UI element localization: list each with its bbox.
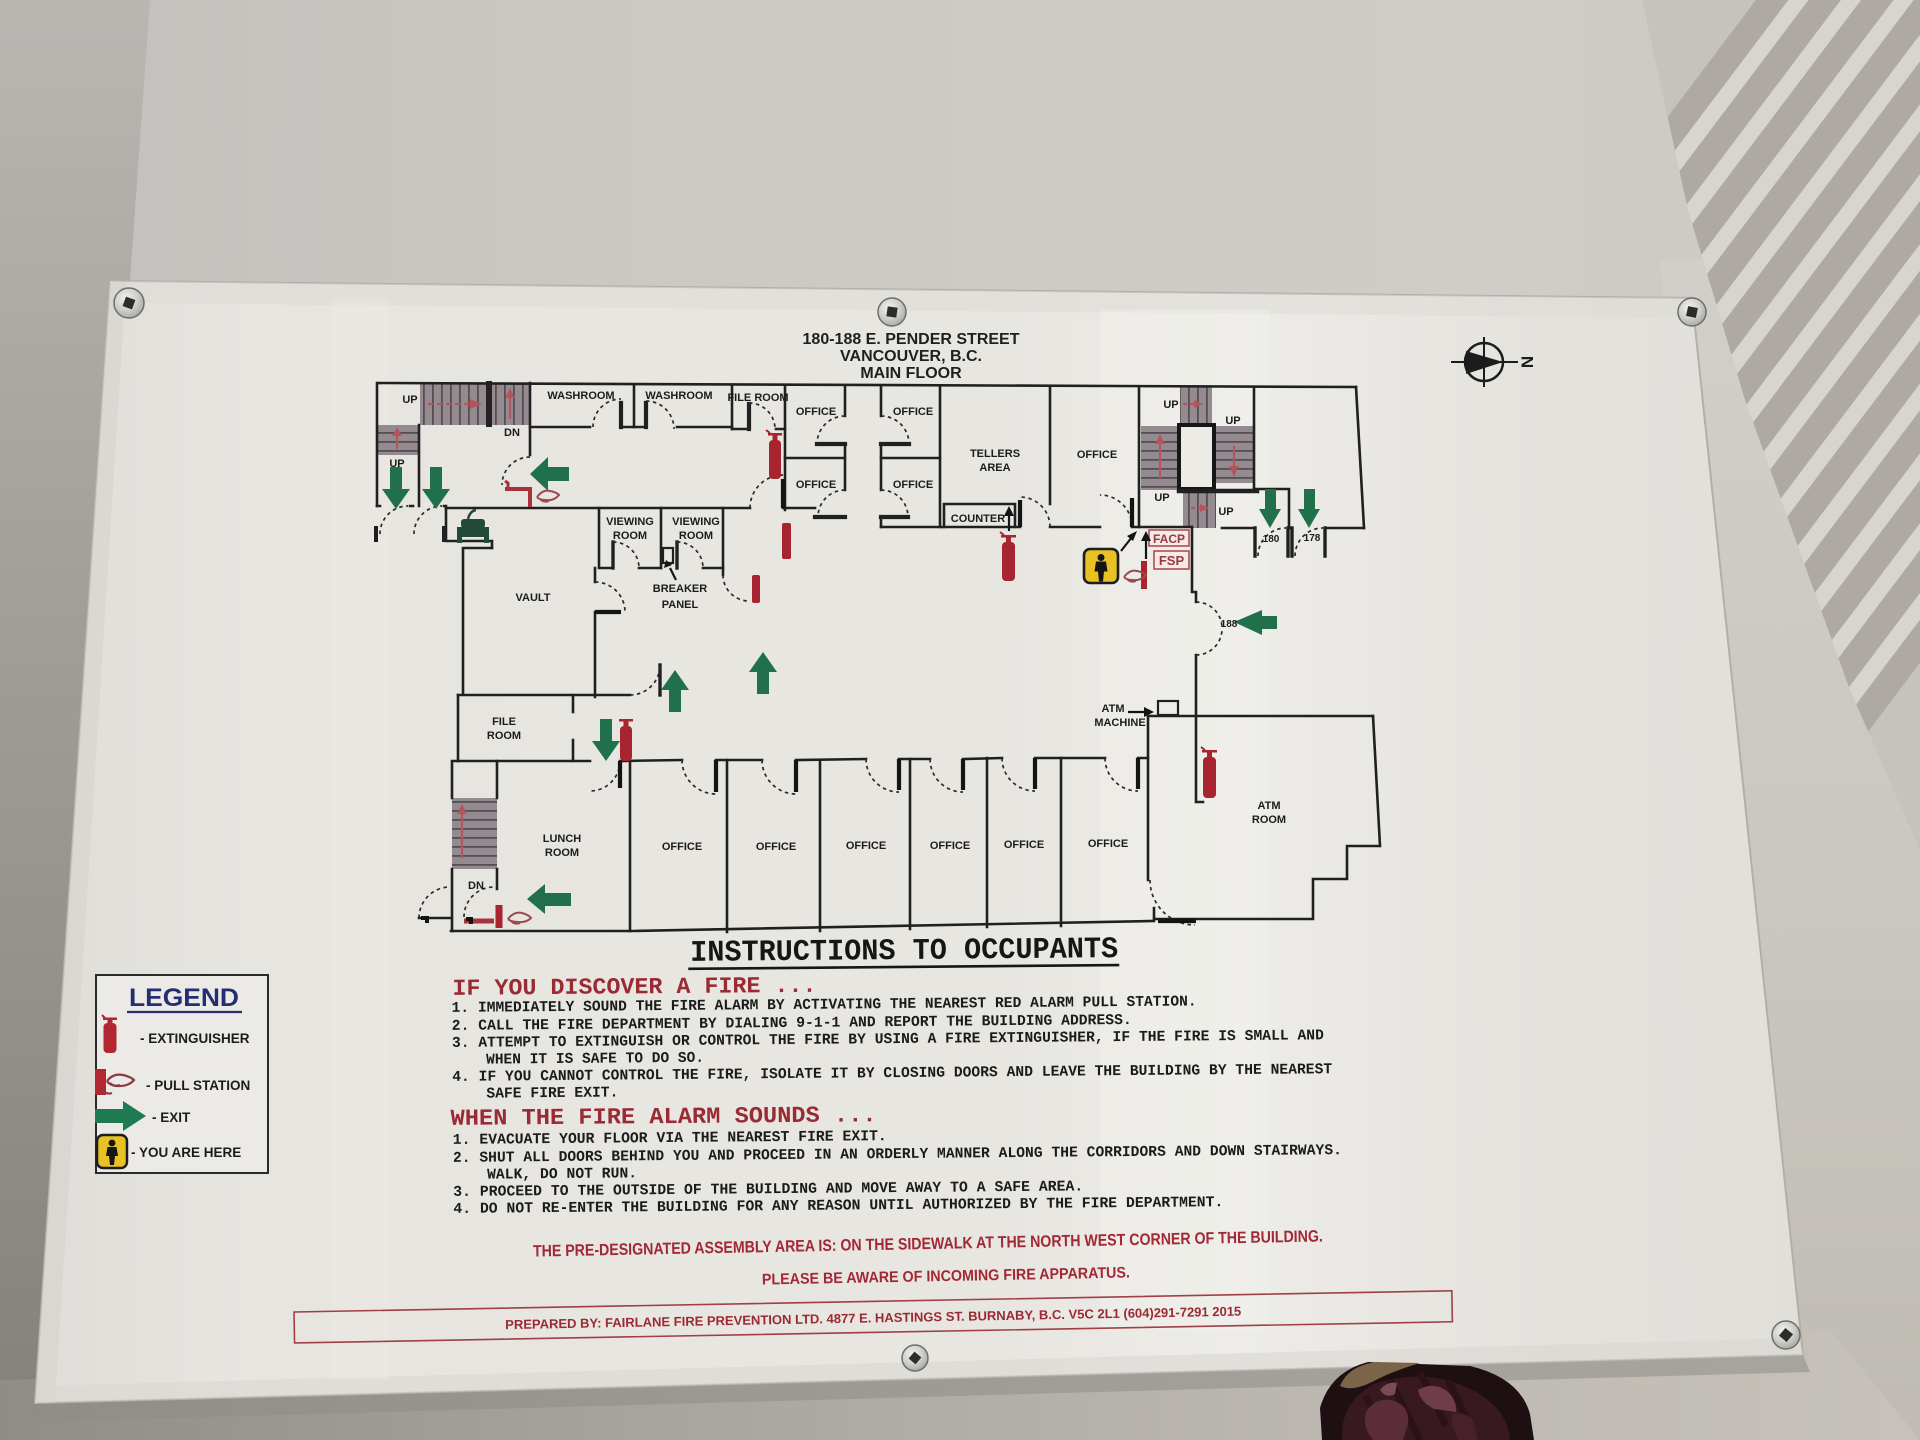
svg-text:FSP: FSP: [1159, 553, 1185, 568]
svg-text:DN: DN: [468, 880, 484, 892]
svg-text:UP: UP: [1218, 506, 1233, 518]
svg-text:- EXTINGUISHER: - EXTINGUISHER: [140, 1031, 250, 1046]
svg-text:OFFICE: OFFICE: [930, 840, 970, 852]
svg-text:- PULL STATION: - PULL STATION: [146, 1078, 250, 1093]
svg-text:OFFICE: OFFICE: [756, 841, 796, 853]
svg-text:FACP: FACP: [1153, 532, 1185, 546]
svg-text:ATM: ATM: [1257, 800, 1280, 812]
svg-text:ATM: ATM: [1101, 703, 1124, 715]
svg-text:COUNTER: COUNTER: [951, 513, 1005, 525]
svg-text:WASHROOM: WASHROOM: [547, 390, 614, 402]
svg-text:ROOM: ROOM: [613, 530, 647, 542]
svg-text:VIEWING: VIEWING: [606, 516, 654, 528]
svg-text:WASHROOM: WASHROOM: [645, 390, 712, 402]
svg-text:OFFICE: OFFICE: [1088, 838, 1128, 850]
svg-text:WHEN IT IS SAFE TO DO SO.: WHEN IT IS SAFE TO DO SO.: [486, 1050, 704, 1069]
svg-text:WHEN THE FIRE ALARM SOUNDS ...: WHEN THE FIRE ALARM SOUNDS ...: [450, 1102, 876, 1132]
svg-text:OFFICE: OFFICE: [1077, 449, 1117, 461]
svg-text:OFFICE: OFFICE: [846, 840, 886, 852]
svg-text:WALK, DO NOT RUN.: WALK, DO NOT RUN.: [487, 1165, 637, 1183]
svg-text:OFFICE: OFFICE: [893, 406, 933, 418]
svg-text:VAULT: VAULT: [515, 592, 550, 604]
svg-text:BREAKER: BREAKER: [653, 583, 707, 595]
svg-text:OFFICE: OFFICE: [893, 479, 933, 491]
svg-text:VIEWING: VIEWING: [672, 516, 720, 528]
svg-text:OFFICE: OFFICE: [796, 479, 836, 491]
svg-text:ROOM: ROOM: [487, 730, 521, 742]
svg-text:SAFE FIRE EXIT.: SAFE FIRE EXIT.: [486, 1084, 618, 1102]
svg-text:LUNCH: LUNCH: [543, 833, 582, 845]
svg-text:DN: DN: [504, 427, 520, 439]
svg-text:LEGEND: LEGEND: [129, 984, 239, 1012]
svg-text:178: 178: [1304, 533, 1321, 544]
svg-text:N: N: [1518, 356, 1537, 368]
svg-text:MAIN FLOOR: MAIN FLOOR: [860, 365, 962, 382]
svg-text:MACHINE: MACHINE: [1094, 717, 1145, 729]
svg-text:ROOM: ROOM: [545, 847, 579, 859]
svg-text:OFFICE: OFFICE: [796, 406, 836, 418]
svg-text:180: 180: [1263, 534, 1280, 545]
svg-text:180-188 E. PENDER STREET: 180-188 E. PENDER STREET: [803, 331, 1020, 348]
svg-text:PANEL: PANEL: [662, 599, 699, 611]
svg-text:OFFICE: OFFICE: [662, 841, 702, 853]
svg-text:VANCOUVER, B.C.: VANCOUVER, B.C.: [840, 348, 982, 365]
svg-text:UP: UP: [1154, 492, 1169, 504]
svg-text:188: 188: [1221, 619, 1238, 630]
svg-text:UP: UP: [1163, 399, 1178, 411]
svg-text:UP: UP: [402, 394, 417, 406]
svg-text:FILE: FILE: [492, 716, 516, 728]
svg-text:UP: UP: [389, 458, 404, 470]
svg-text:- EXIT: - EXIT: [152, 1110, 191, 1125]
svg-text:ROOM: ROOM: [679, 530, 713, 542]
svg-text:AREA: AREA: [979, 462, 1010, 474]
svg-text:- YOU ARE HERE: - YOU ARE HERE: [131, 1145, 241, 1160]
svg-text:UP: UP: [1225, 415, 1240, 427]
svg-text:TELLERS: TELLERS: [970, 448, 1020, 460]
svg-text:ROOM: ROOM: [1252, 814, 1286, 826]
svg-text:FILE ROOM: FILE ROOM: [727, 392, 788, 404]
svg-text:OFFICE: OFFICE: [1004, 839, 1044, 851]
